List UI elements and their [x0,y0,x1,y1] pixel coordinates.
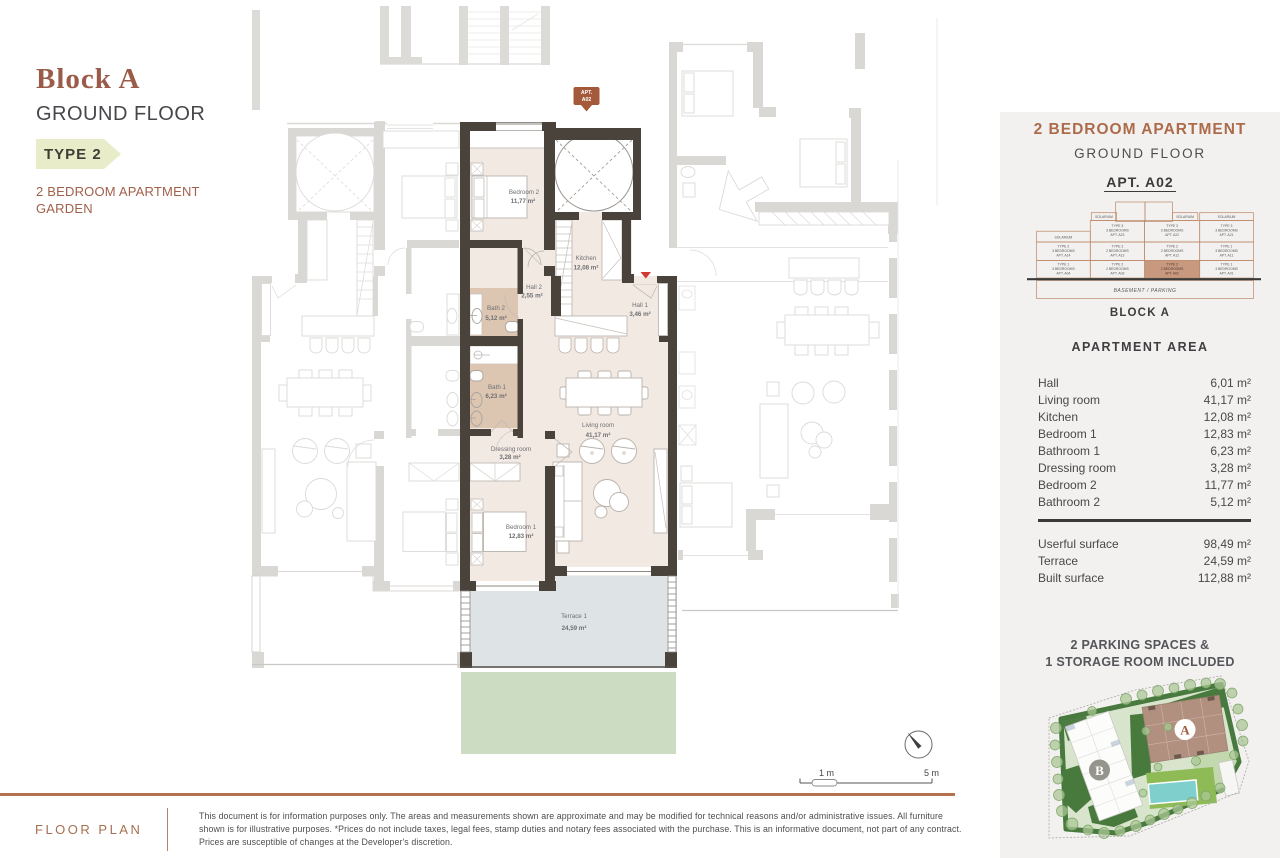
svg-text:3 BEDROOMS: 3 BEDROOMS [1215,229,1238,233]
svg-text:B: B [1095,763,1104,778]
svg-text:APT. A13: APT. A13 [1110,254,1124,258]
svg-text:APT. A02: APT. A02 [1165,272,1179,276]
svg-text:TYPE 3: TYPE 3 [1112,224,1124,228]
svg-text:3 BEDROOMS: 3 BEDROOMS [1215,249,1238,253]
svg-text:2 BEDROOMS: 2 BEDROOMS [1161,267,1184,271]
svg-text:Terrace 1: Terrace 1 [561,613,587,620]
svg-text:3 BEDROOMS: 3 BEDROOMS [1215,267,1238,271]
svg-text:Hall 2: Hall 2 [526,284,542,291]
svg-text:TYPE 1: TYPE 1 [1058,263,1070,267]
svg-text:Bath 1: Bath 1 [488,384,506,391]
svg-text:TYPE 2: TYPE 2 [1058,245,1070,249]
svg-text:5,12 m²: 5,12 m² [485,315,506,322]
svg-text:3 BEDROOMS: 3 BEDROOMS [1106,229,1129,233]
svg-text:APT. A23: APT. A23 [1110,233,1124,237]
svg-text:Kitchen: Kitchen [576,255,597,262]
svg-text:A02: A02 [582,97,592,103]
svg-text:Bath 2: Bath 2 [487,305,505,312]
svg-text:11,77 m²: 11,77 m² [511,198,535,205]
svg-text:3 BEDROOMS: 3 BEDROOMS [1052,249,1075,253]
svg-text:Bedroom 2: Bedroom 2 [509,189,540,196]
svg-text:TYPE 3: TYPE 3 [1221,224,1233,228]
svg-text:SOLARIUM: SOLARIUM [1176,215,1194,219]
svg-text:APT. A03: APT. A03 [1110,272,1124,276]
svg-text:TYPE 2: TYPE 2 [1166,263,1178,267]
svg-text:2,55 m²: 2,55 m² [521,293,542,300]
svg-text:APT. A01: APT. A01 [1220,272,1234,276]
svg-text:TYPE 2: TYPE 2 [1112,245,1124,249]
svg-text:12,08 m²: 12,08 m² [574,265,599,272]
svg-text:6,23 m²: 6,23 m² [485,393,506,400]
svg-text:1 m: 1 m [819,768,834,778]
svg-text:APT. A22: APT. A22 [1165,233,1179,237]
svg-text:3,28 m²: 3,28 m² [499,454,520,461]
svg-text:Dressing room: Dressing room [491,446,531,453]
svg-text:2 BEDROOMS: 2 BEDROOMS [1106,267,1129,271]
svg-text:APT. A11: APT. A11 [1220,254,1234,258]
svg-text:A: A [1180,723,1190,738]
svg-text:2 BEDROOMS: 2 BEDROOMS [1106,249,1129,253]
svg-text:TYPE 3: TYPE 3 [1166,224,1178,228]
svg-text:APT. A21: APT. A21 [1220,233,1234,237]
svg-text:TYPE 2: TYPE 2 [1112,263,1124,267]
svg-text:BASEMENT / PARKING: BASEMENT / PARKING [1114,288,1177,294]
svg-text:3 BEDROOMS: 3 BEDROOMS [1161,229,1184,233]
svg-text:TYPE 2: TYPE 2 [1166,245,1178,249]
svg-text:Bedroom 1: Bedroom 1 [506,524,537,531]
svg-text:Living room: Living room [582,422,614,429]
svg-text:41,17 m²: 41,17 m² [586,432,611,439]
svg-text:SOLARIUM: SOLARIUM [1055,236,1073,240]
svg-text:3,46 m²: 3,46 m² [629,311,650,318]
svg-text:TYPE 1: TYPE 1 [1221,263,1233,267]
svg-text:SOLARIUM: SOLARIUM [1095,215,1113,219]
svg-text:Hall 1: Hall 1 [632,302,648,309]
svg-text:TYPE 1: TYPE 1 [1221,245,1233,249]
svg-text:12,83 m²: 12,83 m² [509,533,534,540]
svg-text:5 m: 5 m [924,768,939,778]
svg-text:APT.: APT. [581,90,593,96]
svg-text:SOLARIUM: SOLARIUM [1218,215,1236,219]
svg-text:APT. A04: APT. A04 [1056,272,1070,276]
svg-text:2 BEDROOMS: 2 BEDROOMS [1161,249,1184,253]
svg-text:APT. A14: APT. A14 [1056,254,1070,258]
svg-text:APT. A12: APT. A12 [1165,254,1179,258]
svg-text:24,59 m²: 24,59 m² [562,625,587,632]
svg-text:3 BEDROOMS: 3 BEDROOMS [1052,267,1075,271]
